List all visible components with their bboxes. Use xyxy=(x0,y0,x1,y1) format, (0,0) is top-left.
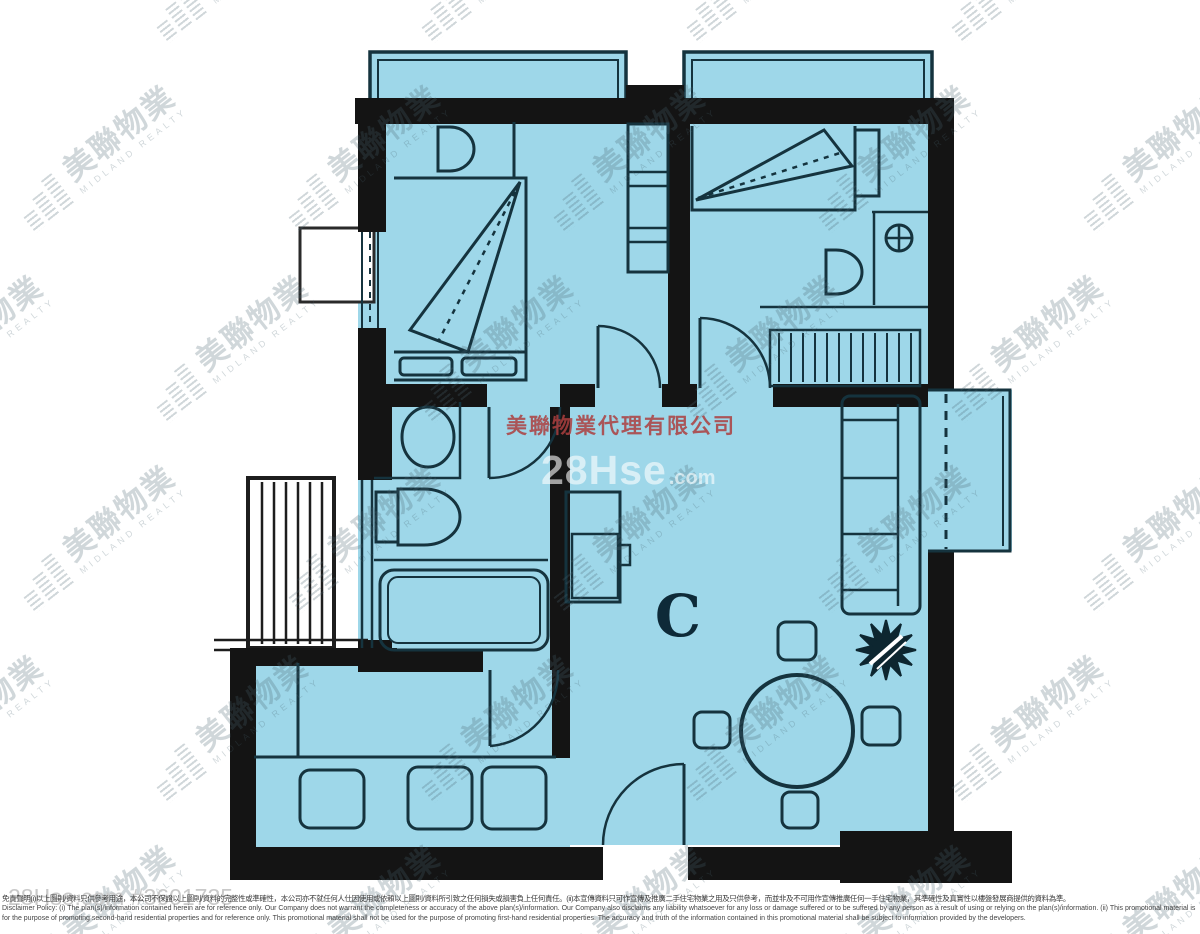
unit-label: C xyxy=(655,582,701,650)
disclaimer-english-line1: Disclaimer Policy: (i) The plan(s)/infor… xyxy=(0,904,1200,914)
floor-plan-image: C 美聯物業MIDLAND REALTY美聯物業MIDLAND REALTY美聯… xyxy=(0,0,1200,934)
agency-watermark: 美聯物業代理有限公司 xyxy=(506,410,736,440)
disclaimer-chinese: 免責聲明(i)以上圖則/資料只供參考用途，本公司不保證以上圖則/資料的完整性或準… xyxy=(0,893,1200,904)
balcony-louver xyxy=(214,478,368,650)
site-watermark-main: 28Hse xyxy=(541,447,667,494)
wash-basin-ensuite xyxy=(886,225,912,251)
disclaimer: 免責聲明(i)以上圖則/資料只供參考用途，本公司不保證以上圖則/資料的完整性或準… xyxy=(0,893,1200,923)
disclaimer-english-line2: for the purpose of promoting second-hand… xyxy=(0,914,1200,924)
site-watermark-tld: .com xyxy=(669,467,716,490)
site-watermark: 28Hse.com xyxy=(541,447,716,494)
